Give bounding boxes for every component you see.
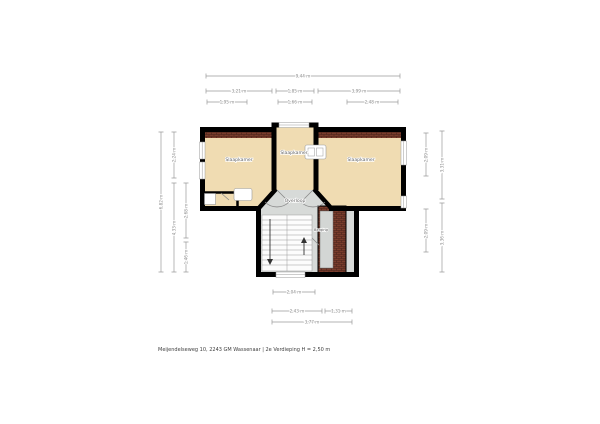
dimension-left-inner-lower: 1,46 m	[184, 242, 189, 272]
dimension-label: 3,77 m	[305, 320, 320, 325]
dimension-left-lower: 4,33 m	[172, 183, 177, 272]
dimension-top-sub-middle: 1,66 m	[278, 100, 312, 105]
dimension-right-outer-lower: 3,36 m	[440, 203, 445, 272]
dimension-label: 1,46 m	[184, 250, 189, 265]
dimension-label: 2,09 m	[424, 224, 429, 239]
room-label-bedroom-middle: Slaapkamer	[280, 150, 307, 156]
dimension-top-middle: 1,85 m	[276, 89, 314, 94]
radiator-icon	[234, 189, 252, 201]
dimension-label: 1,95 m	[220, 100, 235, 105]
dimension-label: 2,43 m	[290, 309, 305, 314]
dimension-label: 3,99 m	[352, 89, 367, 94]
dimension-label: 9,44 m	[296, 74, 311, 79]
dimension-label: 4,33 m	[172, 221, 177, 236]
dimension-label: 3,21 m	[232, 89, 247, 94]
stairs	[262, 215, 312, 271]
room-label-bedroom-right: Slaapkamer	[347, 157, 374, 163]
room-bedroom-right	[316, 128, 404, 209]
brick-strip-left	[205, 132, 274, 138]
storage-cupboard	[320, 211, 333, 268]
dimension-bottom-2: 2,43 m	[272, 309, 322, 314]
dimension-label: 1,31 m	[331, 309, 346, 314]
dimension-label: 2,68 m	[184, 204, 189, 219]
dimension-right-outer-upper: 3,31 m	[440, 131, 445, 199]
dimension-label: 2,09 m	[424, 148, 429, 163]
dimension-top-sub-right: 2,48 m	[347, 100, 398, 105]
dimension-top-right: 3,99 m	[318, 89, 400, 94]
floorplan-page: 9,44 m 3,21 m 1,85 m 3,99 m 1,95 m 1,66 …	[0, 0, 600, 424]
dimension-label: 3,36 m	[440, 231, 445, 246]
dimension-label: 1,85 m	[288, 89, 303, 94]
dimension-right-inner-lower: 2,09 m	[424, 209, 429, 252]
dimension-bottom-3: 1,31 m	[325, 309, 352, 314]
dimension-bottom-1: 2,04 m	[273, 290, 315, 295]
caption: Meijendelseweg 10, 2243 GM Wassenaar | 2…	[158, 347, 330, 353]
dimension-top-sub-left: 1,95 m	[207, 100, 247, 105]
dimension-right-inner-upper: 2,09 m	[424, 133, 429, 176]
dimension-left-upper: 2,24 m	[172, 132, 177, 178]
room-label-landing: Overloop	[285, 198, 306, 204]
dimension-label: 2,24 m	[172, 148, 177, 163]
dimension-bottom-total: 3,77 m	[272, 320, 352, 325]
dimension-label: 3,31 m	[440, 158, 445, 173]
dimension-label: 6,82 m	[159, 195, 164, 210]
dimension-left-inner-upper: 2,68 m	[184, 183, 189, 238]
dimension-top-left: 3,21 m	[206, 89, 272, 94]
dimension-label: 1,66 m	[288, 100, 303, 105]
closet-icon	[205, 194, 216, 205]
floorplan-drawing: 9,44 m 3,21 m 1,85 m 3,99 m 1,95 m 1,66 …	[0, 0, 600, 424]
dimension-label: 2,48 m	[365, 100, 380, 105]
room-label-storage: Berging	[314, 228, 328, 232]
brick-strip-right	[319, 132, 404, 138]
dimension-label: 2,04 m	[287, 290, 302, 295]
dimension-left-total: 6,82 m	[159, 132, 164, 272]
dimension-top-total: 9,44 m	[206, 74, 400, 79]
room-label-bedroom-left: Slaapkamer	[225, 157, 252, 163]
